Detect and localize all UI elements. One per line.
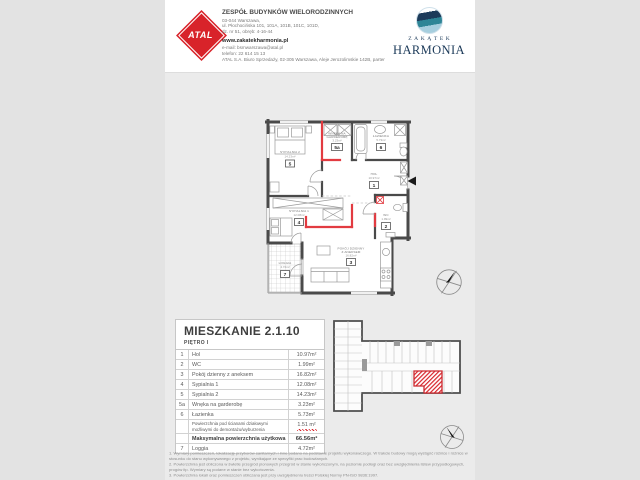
room-number-cell: 5a (176, 400, 189, 409)
room-table-row: 1 Hol 10.97m² (176, 350, 324, 360)
room-name-cell: Hol (189, 351, 288, 359)
room-table-row: 2 WC 1.99m² (176, 360, 324, 370)
room-number-cell: 5 (176, 390, 189, 399)
room-area-cell: 10.97m² (288, 350, 324, 359)
total-area-row: Maksymalna powierzchnia użytkowa 66.56m² (176, 434, 324, 444)
page-header: ATAL ZESPÓŁ BUDYNKÓW WIELORODZINNYCH 03-… (165, 0, 475, 73)
footnote-1: 1. Wymiary pomieszczeń, lokalizację przy… (169, 452, 474, 462)
svg-text:2: 2 (385, 224, 388, 230)
footnote-2: 2. Powierzchnia jest obliczona w świetle… (169, 463, 474, 473)
total-area-value: 66.56m² (288, 434, 324, 443)
room-area-cell: 14.23m² (288, 390, 324, 399)
rooms-table-rows: 1 Hol 10.97m² 2 WC 1.99m² 3 Pokój dzienn… (176, 350, 324, 420)
room-name-cell: Pokój dzienny z aneksem (189, 371, 288, 379)
svg-text:10.97m²: 10.97m² (368, 176, 379, 180)
svg-text:14.23m²: 14.23m² (284, 155, 295, 159)
entrance-arrow-icon (408, 177, 417, 186)
apartment-card: MIESZKANIE 2.1.10 PIĘTRO I 1 Hol 10.97m²… (175, 319, 325, 454)
room-name-cell: Łazienka (189, 411, 288, 419)
brand-name-bottom: HARMONIA (389, 43, 469, 58)
svg-text:16.82m²: 16.82m² (345, 254, 356, 258)
room-area-cell: 12.08m² (288, 380, 324, 389)
building-outline (334, 321, 460, 411)
building-key-plan (328, 316, 466, 418)
room-name-cell: Wnęka na garderobę (189, 401, 288, 409)
room-number-cell: 4 (176, 380, 189, 389)
harmonia-waves-icon (416, 7, 443, 34)
sales-office-line: ATAL S.A. Biuro Sprzedaży, 02-305 Warsza… (222, 57, 387, 63)
brand-name-top: ZAKĄTEK (389, 36, 469, 42)
compass-rose-icon-2 (437, 420, 467, 452)
harmonia-logo: ZAKĄTEK HARMONIA (389, 7, 469, 58)
website-url: www.zakatekharmonia.pl (222, 38, 387, 44)
apartment-title: MIESZKANIE 2.1.10 (184, 324, 324, 338)
atal-logo-text: ATAL (174, 30, 227, 40)
room-number-cell: 3 (176, 370, 189, 379)
room-area-cell: 16.82m² (288, 370, 324, 379)
demolition-label: Powierzchnia pod ścianami działowymi moż… (189, 420, 288, 433)
room-table-row: 3 Pokój dzienny z aneksem 16.82m² (176, 370, 324, 380)
red-hatch-underline (297, 429, 317, 431)
document-page: ATAL ZESPÓŁ BUDYNKÓW WIELORODZINNYCH 03-… (165, 0, 475, 480)
room-number-cell: 2 (176, 360, 189, 369)
rooms-table: 1 Hol 10.97m² 2 WC 1.99m² 3 Pokój dzienn… (175, 350, 325, 454)
svg-text:6: 6 (380, 145, 383, 151)
room-area-cell: 3.23m² (288, 400, 324, 409)
footnote-3: 3. Powierzchnia lokali oraz pomieszczeń … (169, 473, 474, 478)
atal-logo: ATAL (174, 9, 226, 61)
room-name-cell: Sypialnia 1 (189, 381, 288, 389)
project-type: ZESPÓŁ BUDYNKÓW WIELORODZINNYCH (222, 9, 387, 16)
room-table-row: 6 Łazienka 5.73m² (176, 410, 324, 420)
compass-rose-icon (433, 263, 465, 299)
room-table-row: 5a Wnęka na garderobę 3.23m² (176, 400, 324, 410)
svg-text:3: 3 (350, 260, 353, 266)
room-name-cell: Sypialnia 2 (189, 391, 288, 399)
developer-info: ZESPÓŁ BUDYNKÓW WIELORODZINNYCH 03-044 W… (222, 9, 387, 63)
svg-text:5a: 5a (334, 145, 340, 151)
apartment-title-box: MIESZKANIE 2.1.10 PIĘTRO I (175, 319, 325, 350)
room-number-cell: 6 (176, 410, 189, 419)
footnotes: 1. Wymiary pomieszczeń, lokalizację przy… (169, 452, 474, 479)
floor-plan: SYPIALNIA 2 14.23m² 5 WNĘKA NA GARDEROBĘ… (253, 90, 438, 315)
svg-text:1: 1 (373, 183, 376, 189)
room-area-cell: 1.99m² (288, 360, 324, 369)
room-table-row: 4 Sypialnia 1 12.08m² (176, 380, 324, 390)
apartment-floor: PIĘTRO I (184, 340, 324, 346)
svg-text:SYPIALNIA 2: SYPIALNIA 2 (280, 150, 300, 154)
svg-text:1.99m²: 1.99m² (381, 217, 390, 221)
svg-text:4.72m²: 4.72m² (280, 265, 289, 269)
demolition-row: Powierzchnia pod ścianami działowymi moż… (176, 420, 324, 434)
svg-text:12.08m²: 12.08m² (293, 213, 304, 217)
room-number-cell: 1 (176, 350, 189, 359)
room-table-row: 5 Sypialnia 2 14.23m² (176, 390, 324, 400)
wc-shaft (377, 197, 384, 204)
total-area-label: Maksymalna powierzchnia użytkowa (189, 435, 288, 443)
svg-text:5: 5 (289, 161, 292, 167)
room-area-cell: 5.73m² (288, 410, 324, 419)
address-line-3: dz. nr 51, obręb: 4-16-44 (222, 29, 387, 35)
svg-text:4: 4 (298, 220, 301, 226)
pdf-page-canvas: ATAL ZESPÓŁ BUDYNKÓW WIELORODZINNYCH 03-… (0, 0, 640, 480)
demolition-area: 1.51 m² (297, 422, 315, 428)
room-name-cell: WC (189, 361, 288, 369)
svg-text:7: 7 (284, 272, 287, 278)
svg-text:3.23m²: 3.23m² (332, 139, 341, 143)
svg-text:5.73m²: 5.73m² (376, 138, 385, 142)
